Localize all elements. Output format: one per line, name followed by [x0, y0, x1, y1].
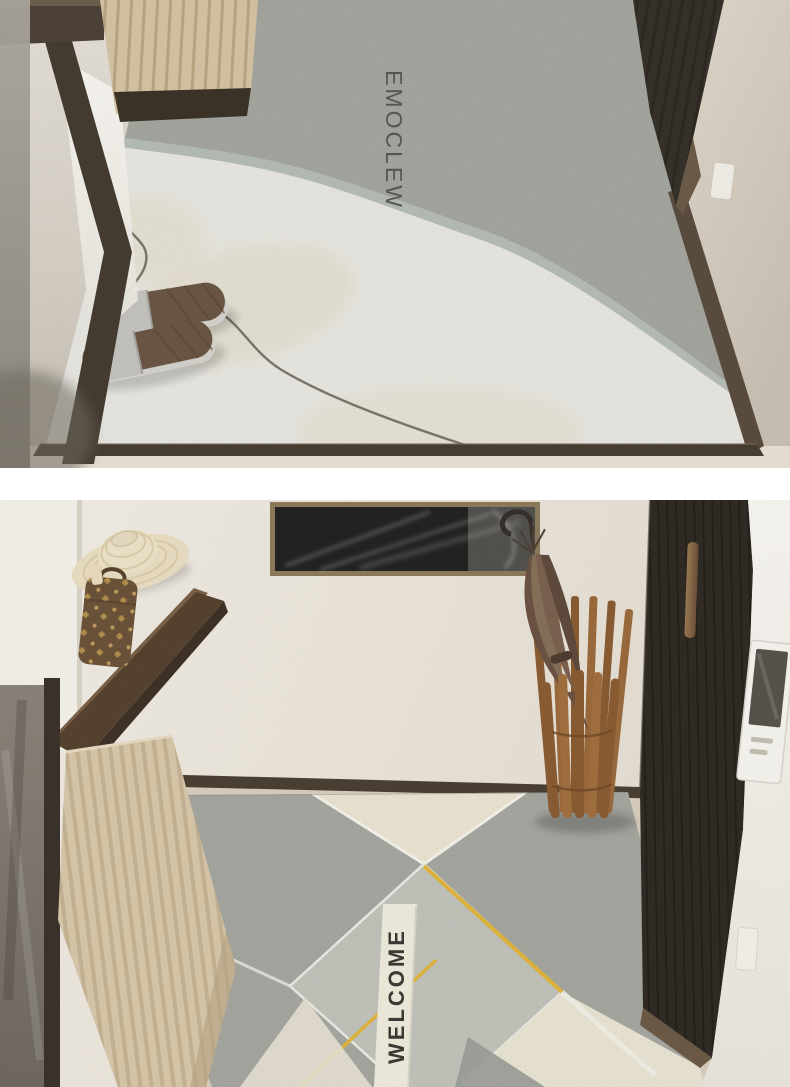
hallway-doormat-photo-2: WELCOME [0, 500, 790, 1087]
photo-grain [0, 0, 790, 468]
photo-grain [0, 500, 790, 1087]
hallway-doormat-photo-1: EMOCLEW [0, 0, 790, 468]
photo-gap [0, 468, 790, 500]
